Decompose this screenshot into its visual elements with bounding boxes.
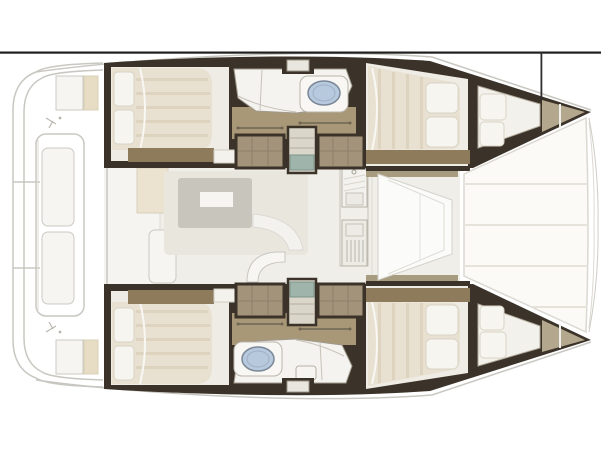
galley-sink-unit <box>342 167 367 207</box>
floor-plan-image <box>0 0 601 450</box>
bow-bridle-line <box>589 122 594 328</box>
step-tread <box>290 282 314 297</box>
deck-fitting <box>46 118 56 128</box>
stern-seat-cushion <box>84 340 98 374</box>
pillow <box>426 339 458 369</box>
pillow <box>426 117 458 147</box>
table-tray <box>200 192 233 207</box>
vertical-frame-line <box>541 52 543 100</box>
cockpit-seat <box>137 168 168 213</box>
starboard-aft-cabin <box>111 289 241 385</box>
deck-hatch <box>287 381 309 392</box>
starboard-hull <box>36 279 591 399</box>
aft-bench-cushion <box>42 148 74 226</box>
port-wardrobes <box>236 127 364 173</box>
forepeak-cushion <box>480 94 506 120</box>
galley <box>340 166 368 266</box>
stern-seat <box>56 76 83 110</box>
forepeak-cushion <box>480 332 506 358</box>
pillow <box>114 308 134 342</box>
port-forward-cabin <box>366 63 470 166</box>
aft-bench-cushion <box>42 232 74 304</box>
pillow <box>426 83 458 113</box>
catamaran-floor-plan <box>0 0 601 450</box>
deck-fitting <box>46 322 56 332</box>
pillow <box>114 72 134 106</box>
step-tread <box>290 155 314 170</box>
cabin-floor <box>128 148 214 162</box>
pillow <box>114 110 134 144</box>
forepeak-cushion <box>480 306 504 330</box>
cabin-floor <box>128 290 214 304</box>
stern-seat <box>56 340 83 374</box>
deck-fitting <box>59 331 62 334</box>
galley-stove-unit <box>342 220 367 266</box>
forepeak-cushion <box>480 122 504 146</box>
top-frame-line <box>0 52 601 54</box>
toilet <box>296 366 316 380</box>
cabin-floor <box>366 150 470 164</box>
sink-basin <box>346 193 363 205</box>
deck-hatch <box>287 60 309 71</box>
starboard-wardrobes <box>236 279 364 325</box>
stern-deck <box>13 63 103 387</box>
stern-seat-cushion <box>84 76 98 110</box>
pillow <box>114 346 134 380</box>
port-aft-cabin <box>111 67 241 163</box>
deck-fitting <box>59 117 62 120</box>
cabin-floor <box>366 288 470 302</box>
starboard-forward-cabin <box>366 286 470 389</box>
pillow <box>426 305 458 335</box>
